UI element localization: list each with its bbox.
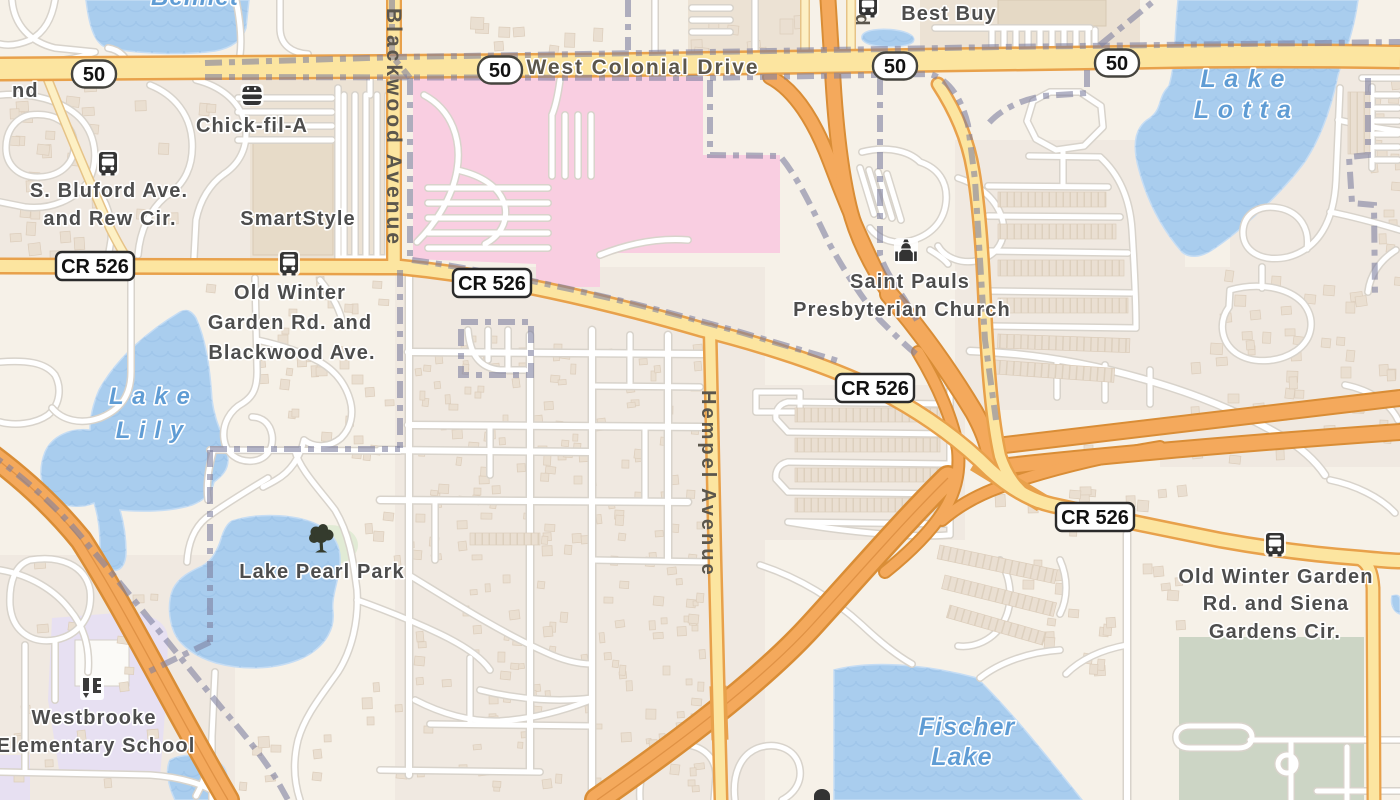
svg-text:50: 50 [884, 56, 906, 78]
svg-text:CR 526: CR 526 [61, 256, 129, 278]
svg-text:Garden Rd. and: Garden Rd. and [208, 312, 372, 334]
svg-text:CR 526: CR 526 [1061, 507, 1129, 529]
svg-text:West Colonial Drive: West Colonial Drive [527, 56, 760, 79]
svg-text:Westbrooke: Westbrooke [31, 707, 156, 729]
svg-text:Elementary School: Elementary School [0, 735, 195, 757]
svg-text:Lake Pearl Park: Lake Pearl Park [239, 561, 405, 583]
svg-text:Lake: Lake [931, 743, 992, 771]
svg-text:Blackwood Avenue: Blackwood Avenue [382, 8, 405, 247]
svg-text:L i l y: L i l y [116, 417, 185, 444]
svg-text:Bennet: Bennet [151, 0, 239, 11]
svg-text:50: 50 [1106, 53, 1128, 75]
svg-text:Blackwood Ave.: Blackwood Ave. [208, 342, 375, 364]
svg-text:Hempel Avenue: Hempel Avenue [697, 390, 719, 578]
svg-text:Gardens Cir.: Gardens Cir. [1209, 621, 1341, 643]
svg-text:S. Bluford Ave.: S. Bluford Ave. [30, 180, 188, 202]
svg-text:nd: nd [12, 80, 39, 102]
svg-text:50: 50 [83, 64, 105, 86]
svg-text:50: 50 [489, 60, 511, 82]
svg-text:Best Buy: Best Buy [901, 3, 997, 25]
svg-text:Old Winter: Old Winter [234, 282, 346, 304]
svg-text:and Rew Cir.: and Rew Cir. [43, 208, 176, 230]
svg-text:SmartStyle: SmartStyle [240, 208, 356, 230]
svg-text:CR 526: CR 526 [841, 378, 909, 400]
svg-text:Presbyterian Church: Presbyterian Church [793, 299, 1011, 321]
svg-text:d: d [851, 14, 872, 26]
svg-text:Chick-fil-A: Chick-fil-A [196, 115, 308, 137]
svg-text:Rd. and Siena: Rd. and Siena [1203, 593, 1350, 615]
svg-text:Saint Pauls: Saint Pauls [850, 271, 970, 293]
svg-text:L o t t a: L o t t a [1194, 96, 1292, 124]
svg-text:L a k e: L a k e [1200, 65, 1285, 93]
svg-text:L a k e: L a k e [109, 383, 191, 410]
svg-text:CR 526: CR 526 [458, 273, 526, 295]
svg-text:Old Winter Garden: Old Winter Garden [1178, 566, 1373, 588]
svg-text:Fischer: Fischer [919, 713, 1016, 741]
